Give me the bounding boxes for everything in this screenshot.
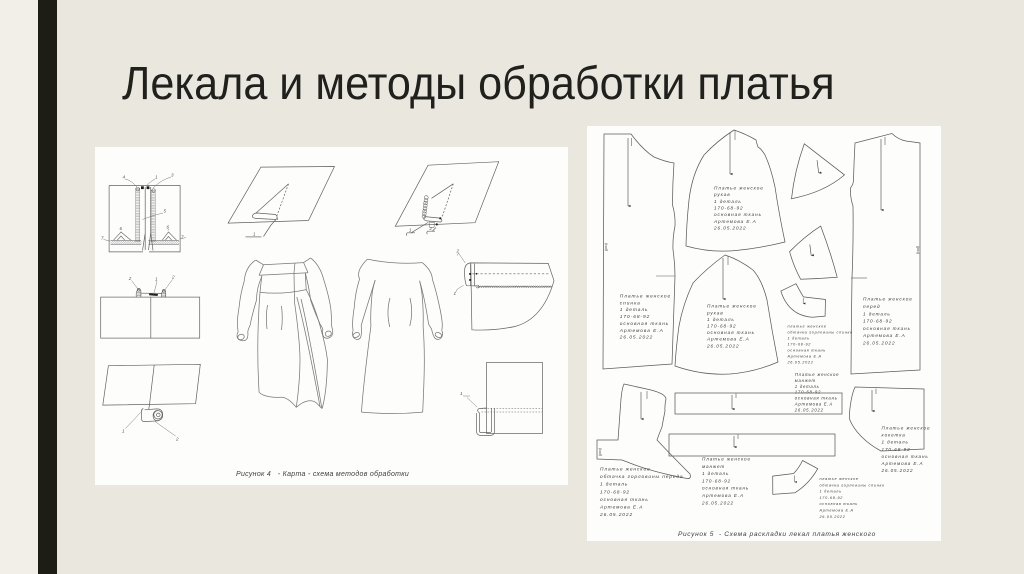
- svg-text:Платье женское: Платье женское: [863, 297, 913, 302]
- svg-text:26.05.2022: 26.05.2022: [599, 512, 633, 518]
- svg-text:1: 1: [460, 391, 463, 396]
- svg-text:платье женское: платье женское: [820, 477, 859, 481]
- svg-text:Артемова Е.А: Артемова Е.А: [701, 493, 744, 498]
- svg-text:26.05.2022: 26.05.2022: [787, 361, 814, 365]
- svg-text:4: 4: [123, 175, 126, 180]
- svg-text:1: 1: [253, 232, 256, 237]
- svg-text:манжет: манжет: [795, 378, 816, 383]
- svg-text:Артемова Е.А: Артемова Е.А: [599, 505, 643, 511]
- svg-text:1 деталь: 1 деталь: [707, 317, 735, 322]
- svg-text:1: 1: [155, 277, 158, 282]
- svg-text:основная ткань: основная ткань: [820, 502, 858, 506]
- svg-text:7: 7: [101, 236, 104, 241]
- svg-text:Рисунок 5 - Схема раскладки л: Рисунок 5 - Схема раскладки лекал платья…: [678, 530, 876, 538]
- svg-text:(ряз): (ряз): [604, 243, 608, 251]
- svg-text:Артемова Е.А: Артемова Е.А: [881, 461, 924, 466]
- svg-text:1 деталь: 1 деталь: [620, 307, 649, 313]
- svg-text:170-68-92: 170-68-92: [820, 496, 844, 500]
- svg-text:2: 2: [128, 276, 132, 281]
- svg-text:основная ткань: основная ткань: [863, 326, 911, 331]
- svg-text:обтачка горловины спинки: обтачка горловины спинки: [788, 331, 853, 335]
- svg-text:обтачка горловины спинки: обтачка горловины спинки: [820, 483, 885, 487]
- svg-text:170-68-92: 170-68-92: [714, 206, 743, 211]
- svg-text:1: 1: [454, 291, 457, 296]
- svg-text:1 деталь: 1 деталь: [600, 482, 628, 488]
- svg-text:170-68-92: 170-68-92: [795, 390, 821, 395]
- svg-text:основная ткань: основная ткань: [795, 396, 838, 401]
- svg-text:26.05.2022: 26.05.2022: [619, 335, 654, 341]
- svg-text:7: 7: [181, 235, 184, 240]
- svg-text:1 деталь: 1 деталь: [820, 490, 842, 494]
- svg-text:Платье женское: Платье женское: [707, 304, 757, 309]
- svg-text:Артемова Е.А: Артемова Е.А: [619, 328, 664, 334]
- svg-text:6: 6: [120, 226, 123, 231]
- svg-text:спинка: спинка: [620, 301, 641, 306]
- svg-text:(ряз): (ряз): [916, 246, 920, 254]
- svg-text:Артемова Е.А: Артемова Е.А: [787, 355, 822, 359]
- svg-text:Платье женское: Платье женское: [714, 186, 764, 191]
- svg-text:26.05.2022: 26.05.2022: [794, 407, 824, 412]
- svg-text:1 деталь: 1 деталь: [788, 337, 810, 341]
- svg-text:основная ткань: основная ткань: [707, 330, 755, 335]
- svg-text:1 деталь: 1 деталь: [714, 199, 742, 204]
- svg-text:(ряз): (ряз): [598, 448, 602, 456]
- svg-text:Артемова Е.А: Артемова Е.А: [713, 219, 757, 224]
- svg-text:1 деталь: 1 деталь: [795, 384, 820, 389]
- svg-text:6: 6: [167, 225, 170, 230]
- svg-text:Платье женское: Платье женское: [882, 426, 931, 431]
- svg-text:Артемова Е.А: Артемова Е.А: [819, 509, 854, 513]
- svg-text:5: 5: [164, 209, 167, 214]
- svg-text:3: 3: [171, 173, 174, 178]
- svg-text:Рисунок 4 - Карта - схема ме: Рисунок 4 - Карта - схема методов обрабо…: [236, 470, 409, 478]
- svg-text:Платье женское: Платье женское: [600, 467, 651, 473]
- svg-text:26.05.2022: 26.05.2022: [881, 468, 914, 473]
- svg-text:26.05.2022: 26.05.2022: [819, 515, 846, 519]
- svg-text:170-68-92: 170-68-92: [882, 447, 911, 452]
- svg-text:1: 1: [155, 175, 158, 180]
- svg-text:1: 1: [409, 228, 412, 233]
- svg-text:170-68-92: 170-68-92: [788, 343, 812, 347]
- svg-text:обтачка горловины переда: обтачка горловины переда: [600, 474, 684, 480]
- svg-text:кокетка: кокетка: [882, 433, 906, 438]
- svg-text:Артемова Е.А: Артемова Е.А: [706, 337, 750, 342]
- svg-text:26.05.2022: 26.05.2022: [701, 500, 734, 505]
- svg-text:основная ткань: основная ткань: [882, 454, 929, 459]
- svg-text:170-68-92: 170-68-92: [863, 319, 892, 324]
- svg-text:основная ткань: основная ткань: [600, 498, 649, 503]
- svg-text:170-68-92: 170-68-92: [702, 478, 731, 483]
- svg-text:26.05.2022: 26.05.2022: [862, 341, 895, 346]
- svg-text:1 деталь: 1 деталь: [702, 471, 729, 476]
- svg-text:1 деталь: 1 деталь: [863, 311, 891, 316]
- svg-text:2: 2: [171, 274, 175, 279]
- svg-text:Платье женское: Платье женское: [795, 372, 840, 377]
- svg-text:170-68-92: 170-68-92: [707, 324, 736, 329]
- svg-text:Платье женское: Платье женское: [620, 294, 671, 300]
- svg-text:платье женское: платье женское: [788, 325, 827, 329]
- svg-text:манжет: манжет: [702, 464, 725, 469]
- svg-text:2: 2: [175, 437, 179, 442]
- svg-text:основная ткань: основная ткань: [702, 486, 749, 491]
- svg-text:перед: перед: [863, 304, 880, 309]
- svg-text:Платье женское: Платье женское: [702, 457, 751, 462]
- svg-text:170-68-92: 170-68-92: [620, 314, 650, 320]
- svg-text:основная ткань: основная ткань: [620, 322, 669, 327]
- svg-text:1: 1: [122, 429, 125, 434]
- svg-text:рукав: рукав: [713, 192, 731, 197]
- svg-text:2: 2: [429, 226, 433, 231]
- svg-text:170-68-92: 170-68-92: [600, 489, 630, 495]
- svg-text:основная ткань: основная ткань: [714, 212, 762, 217]
- svg-text:26.05.2022: 26.05.2022: [713, 226, 746, 231]
- svg-text:1 деталь: 1 деталь: [882, 440, 909, 445]
- svg-text:26.05.2022: 26.05.2022: [706, 343, 739, 348]
- svg-text:рукав: рукав: [706, 310, 724, 315]
- svg-text:основная ткань: основная ткань: [788, 349, 826, 353]
- svg-text:Артемова Е.А: Артемова Е.А: [794, 402, 833, 407]
- svg-text:2: 2: [456, 249, 460, 254]
- svg-text:Артемова Е.А: Артемова Е.А: [862, 333, 906, 338]
